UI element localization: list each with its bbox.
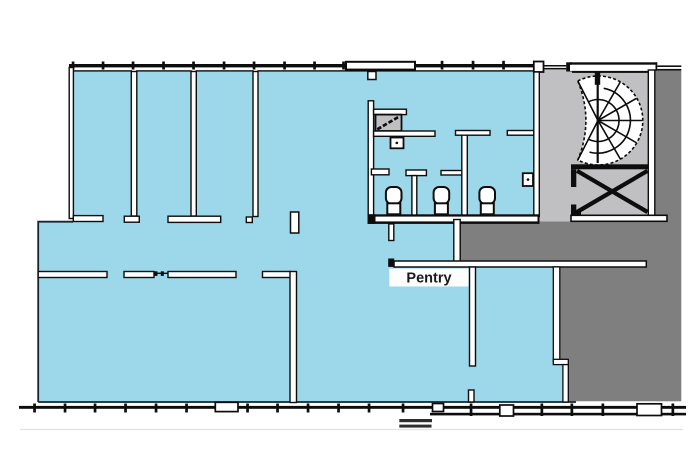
svg-text:Pentry: Pentry	[406, 270, 451, 286]
